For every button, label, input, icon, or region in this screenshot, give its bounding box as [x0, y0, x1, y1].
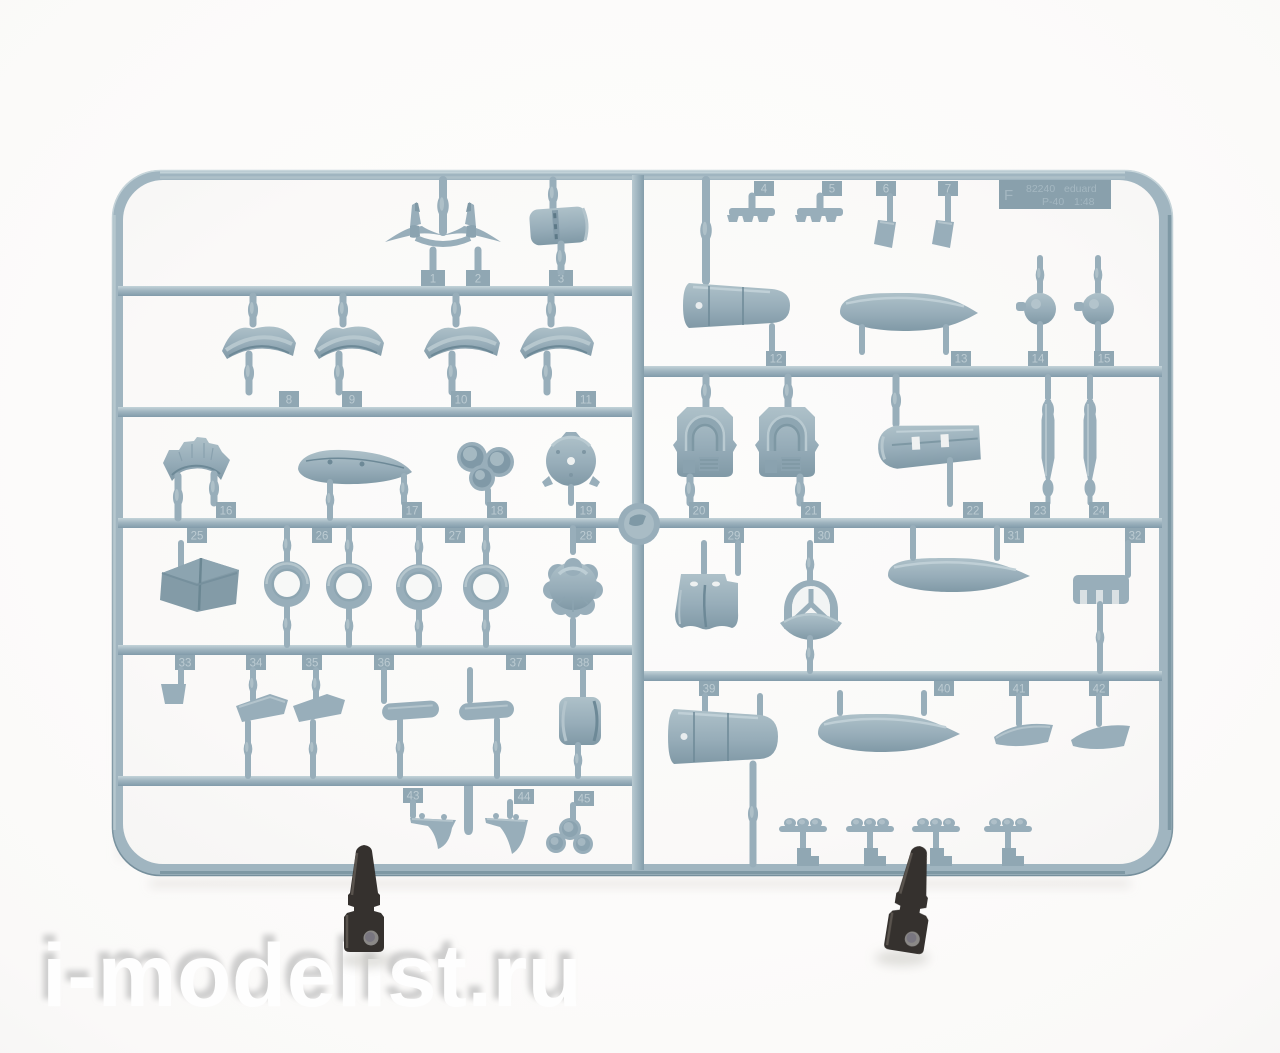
svg-text:18: 18: [491, 506, 504, 518]
svg-text:15: 15: [1098, 354, 1111, 366]
svg-text:11: 11: [580, 395, 592, 407]
svg-text:19: 19: [580, 506, 593, 518]
svg-text:32: 32: [1129, 531, 1142, 543]
svg-text:30: 30: [818, 531, 831, 543]
svg-text:8: 8: [286, 395, 292, 407]
svg-text:4: 4: [761, 184, 768, 196]
svg-text:20: 20: [693, 506, 706, 518]
svg-text:13: 13: [955, 354, 968, 366]
svg-text:23: 23: [1034, 506, 1047, 518]
svg-text:i-modelist.ru: i-modelist.ru: [42, 925, 583, 1025]
svg-text:5: 5: [829, 184, 835, 196]
svg-text:P-40: P-40: [1042, 196, 1064, 208]
svg-text:27: 27: [449, 531, 462, 543]
svg-text:eduard: eduard: [1064, 183, 1097, 195]
svg-text:12: 12: [770, 354, 783, 366]
svg-text:31: 31: [1008, 531, 1021, 543]
svg-text:37: 37: [510, 658, 523, 670]
svg-text:F: F: [1004, 187, 1013, 204]
svg-text:22: 22: [967, 506, 980, 518]
svg-text:1:48: 1:48: [1074, 196, 1095, 208]
svg-text:2: 2: [475, 274, 481, 286]
svg-text:14: 14: [1032, 354, 1045, 366]
svg-text:1: 1: [430, 274, 436, 286]
svg-text:28: 28: [580, 531, 593, 543]
svg-text:10: 10: [455, 395, 468, 407]
svg-text:21: 21: [805, 506, 818, 518]
svg-text:26: 26: [316, 531, 329, 543]
svg-text:40: 40: [938, 684, 951, 696]
svg-text:45: 45: [578, 794, 591, 806]
svg-text:82240: 82240: [1026, 183, 1055, 195]
svg-text:24: 24: [1093, 506, 1106, 518]
svg-text:44: 44: [518, 792, 531, 804]
svg-text:9: 9: [349, 395, 355, 407]
svg-text:16: 16: [220, 506, 233, 518]
svg-text:25: 25: [191, 531, 204, 543]
svg-text:17: 17: [406, 506, 419, 518]
